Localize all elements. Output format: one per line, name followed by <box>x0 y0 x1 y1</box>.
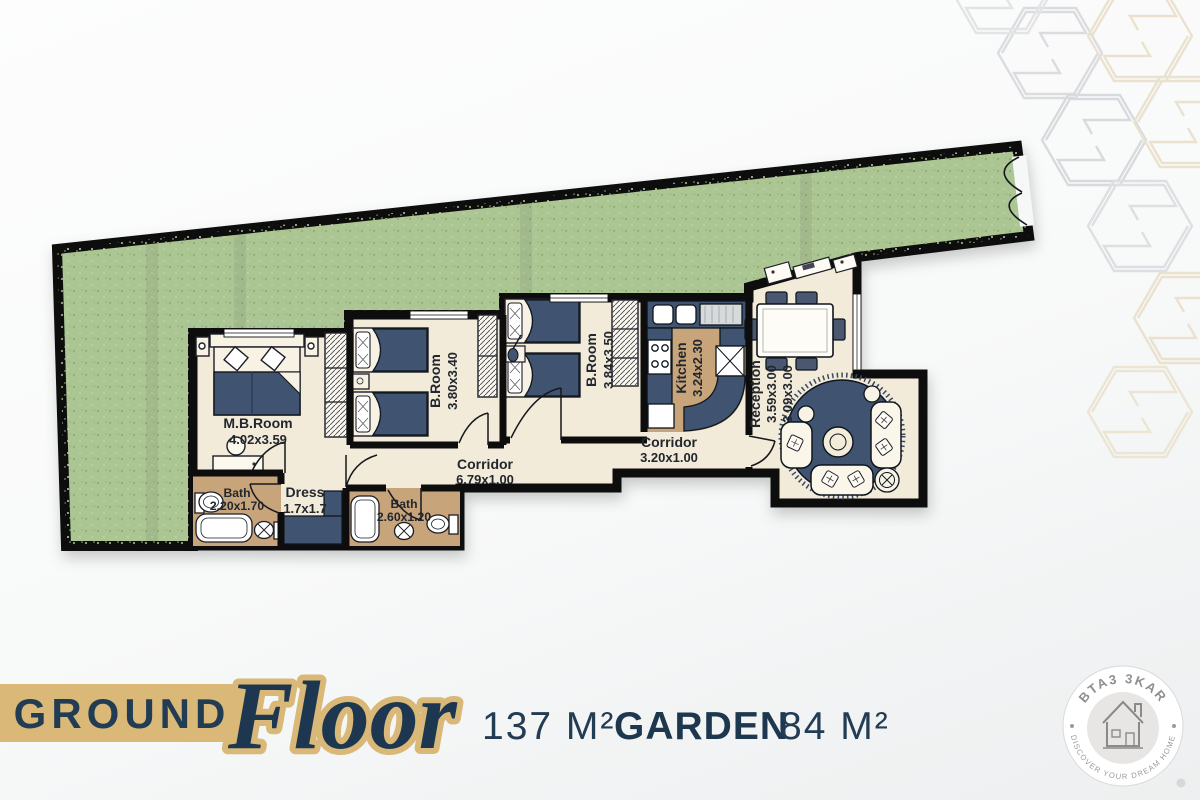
room-label-bath2: Bath <box>390 497 417 511</box>
room-label-corridor-2: Corridor <box>641 434 698 450</box>
room-dims-broom2: 3.84x3.50 <box>601 331 616 389</box>
floor-plan-poster: M.B.Room 4.02x3.59 B.Room 3.80x3.40 B.Ro… <box>0 0 1200 800</box>
room-label-corridor-main: Corridor <box>457 456 514 472</box>
room-label-reception: Reception <box>747 360 763 428</box>
br1-wardrobe-icon <box>478 315 497 397</box>
floor-script-word: Floor <box>227 662 458 770</box>
brand-badge: BTA3 3KAR DISCOVER YOUR DREAM HOME <box>1063 666 1186 788</box>
room-dims-reception: 3.59x3.00 <box>764 365 779 423</box>
garden-area-value: 84 M² <box>780 705 890 748</box>
bed-icon <box>505 299 580 343</box>
room-label-bath1: Bath <box>223 486 250 500</box>
room-dims-corridor-2: 3.20x1.00 <box>640 450 698 465</box>
room-label-kitchen: Kitchen <box>673 342 689 393</box>
room-dims-dress: 1.7x1.7 <box>283 501 326 516</box>
room-label-broom1: B.Room <box>427 354 443 408</box>
room-dims-kitchen: 3.24x2.30 <box>690 339 705 397</box>
room-label-mbroom: M.B.Room <box>223 415 292 431</box>
floor-caption: GROUND Floor 137 M² GARDEN 84 M² <box>0 662 890 770</box>
bed-icon <box>353 328 428 372</box>
room-dims-bath2: 2.60x1.20 <box>377 510 431 524</box>
mb-wardrobe-icon <box>325 333 347 437</box>
room-label-dress: Dress <box>286 484 325 500</box>
floor-plan-canvas: M.B.Room 4.02x3.59 B.Room 3.80x3.40 B.Ro… <box>0 0 1200 800</box>
room-dims2-reception: 3.09x3.00 <box>780 365 795 423</box>
room-dims-mbroom: 4.02x3.59 <box>229 432 287 447</box>
room-dims-broom1: 3.80x3.40 <box>445 352 460 410</box>
badge-registered-dot <box>1177 779 1186 788</box>
room-dims-corridor-main: 6.79x1.00 <box>456 472 514 487</box>
room-label-broom2: B.Room <box>583 333 599 387</box>
nightstand-icon <box>352 374 369 389</box>
floor-area-value: 137 M² <box>482 705 615 748</box>
master-bed-icon <box>196 334 318 415</box>
room-dims-bath1: 2.20x1.70 <box>210 499 264 513</box>
garden-word: GARDEN <box>614 705 789 748</box>
floor-word: GROUND <box>14 690 231 737</box>
bed-icon <box>353 392 428 436</box>
